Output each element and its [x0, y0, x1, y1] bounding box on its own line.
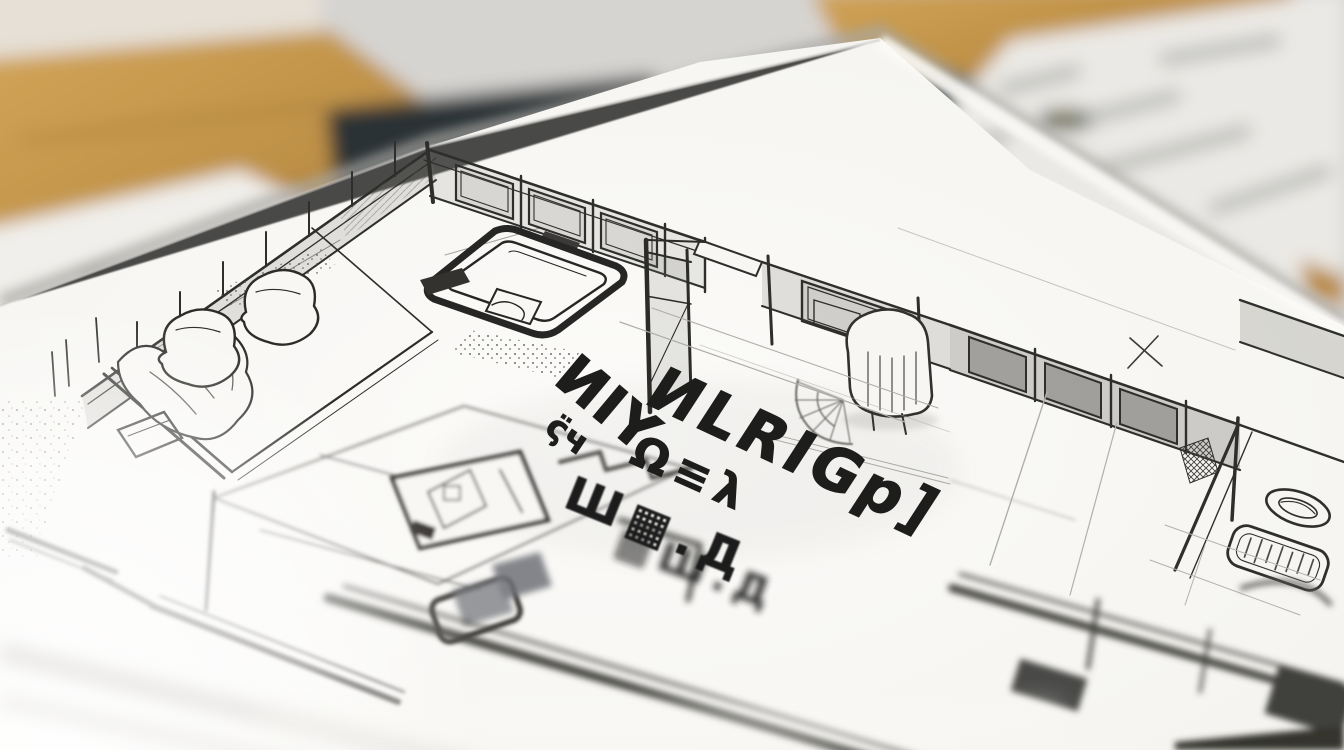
- sheet-mark-khaki: [1052, 112, 1072, 124]
- foreground-haze: [260, 700, 1060, 750]
- photo-scene: ИIY ИLRIGр] ς̈ч Ω≡λ Ш▦.Д ▦Ш.Д: [0, 0, 1344, 750]
- pillow-2: [241, 270, 318, 345]
- scene-svg: ИIY ИLRIGр] ς̈ч Ω≡λ Ш▦.Д ▦Ш.Д: [0, 0, 1344, 750]
